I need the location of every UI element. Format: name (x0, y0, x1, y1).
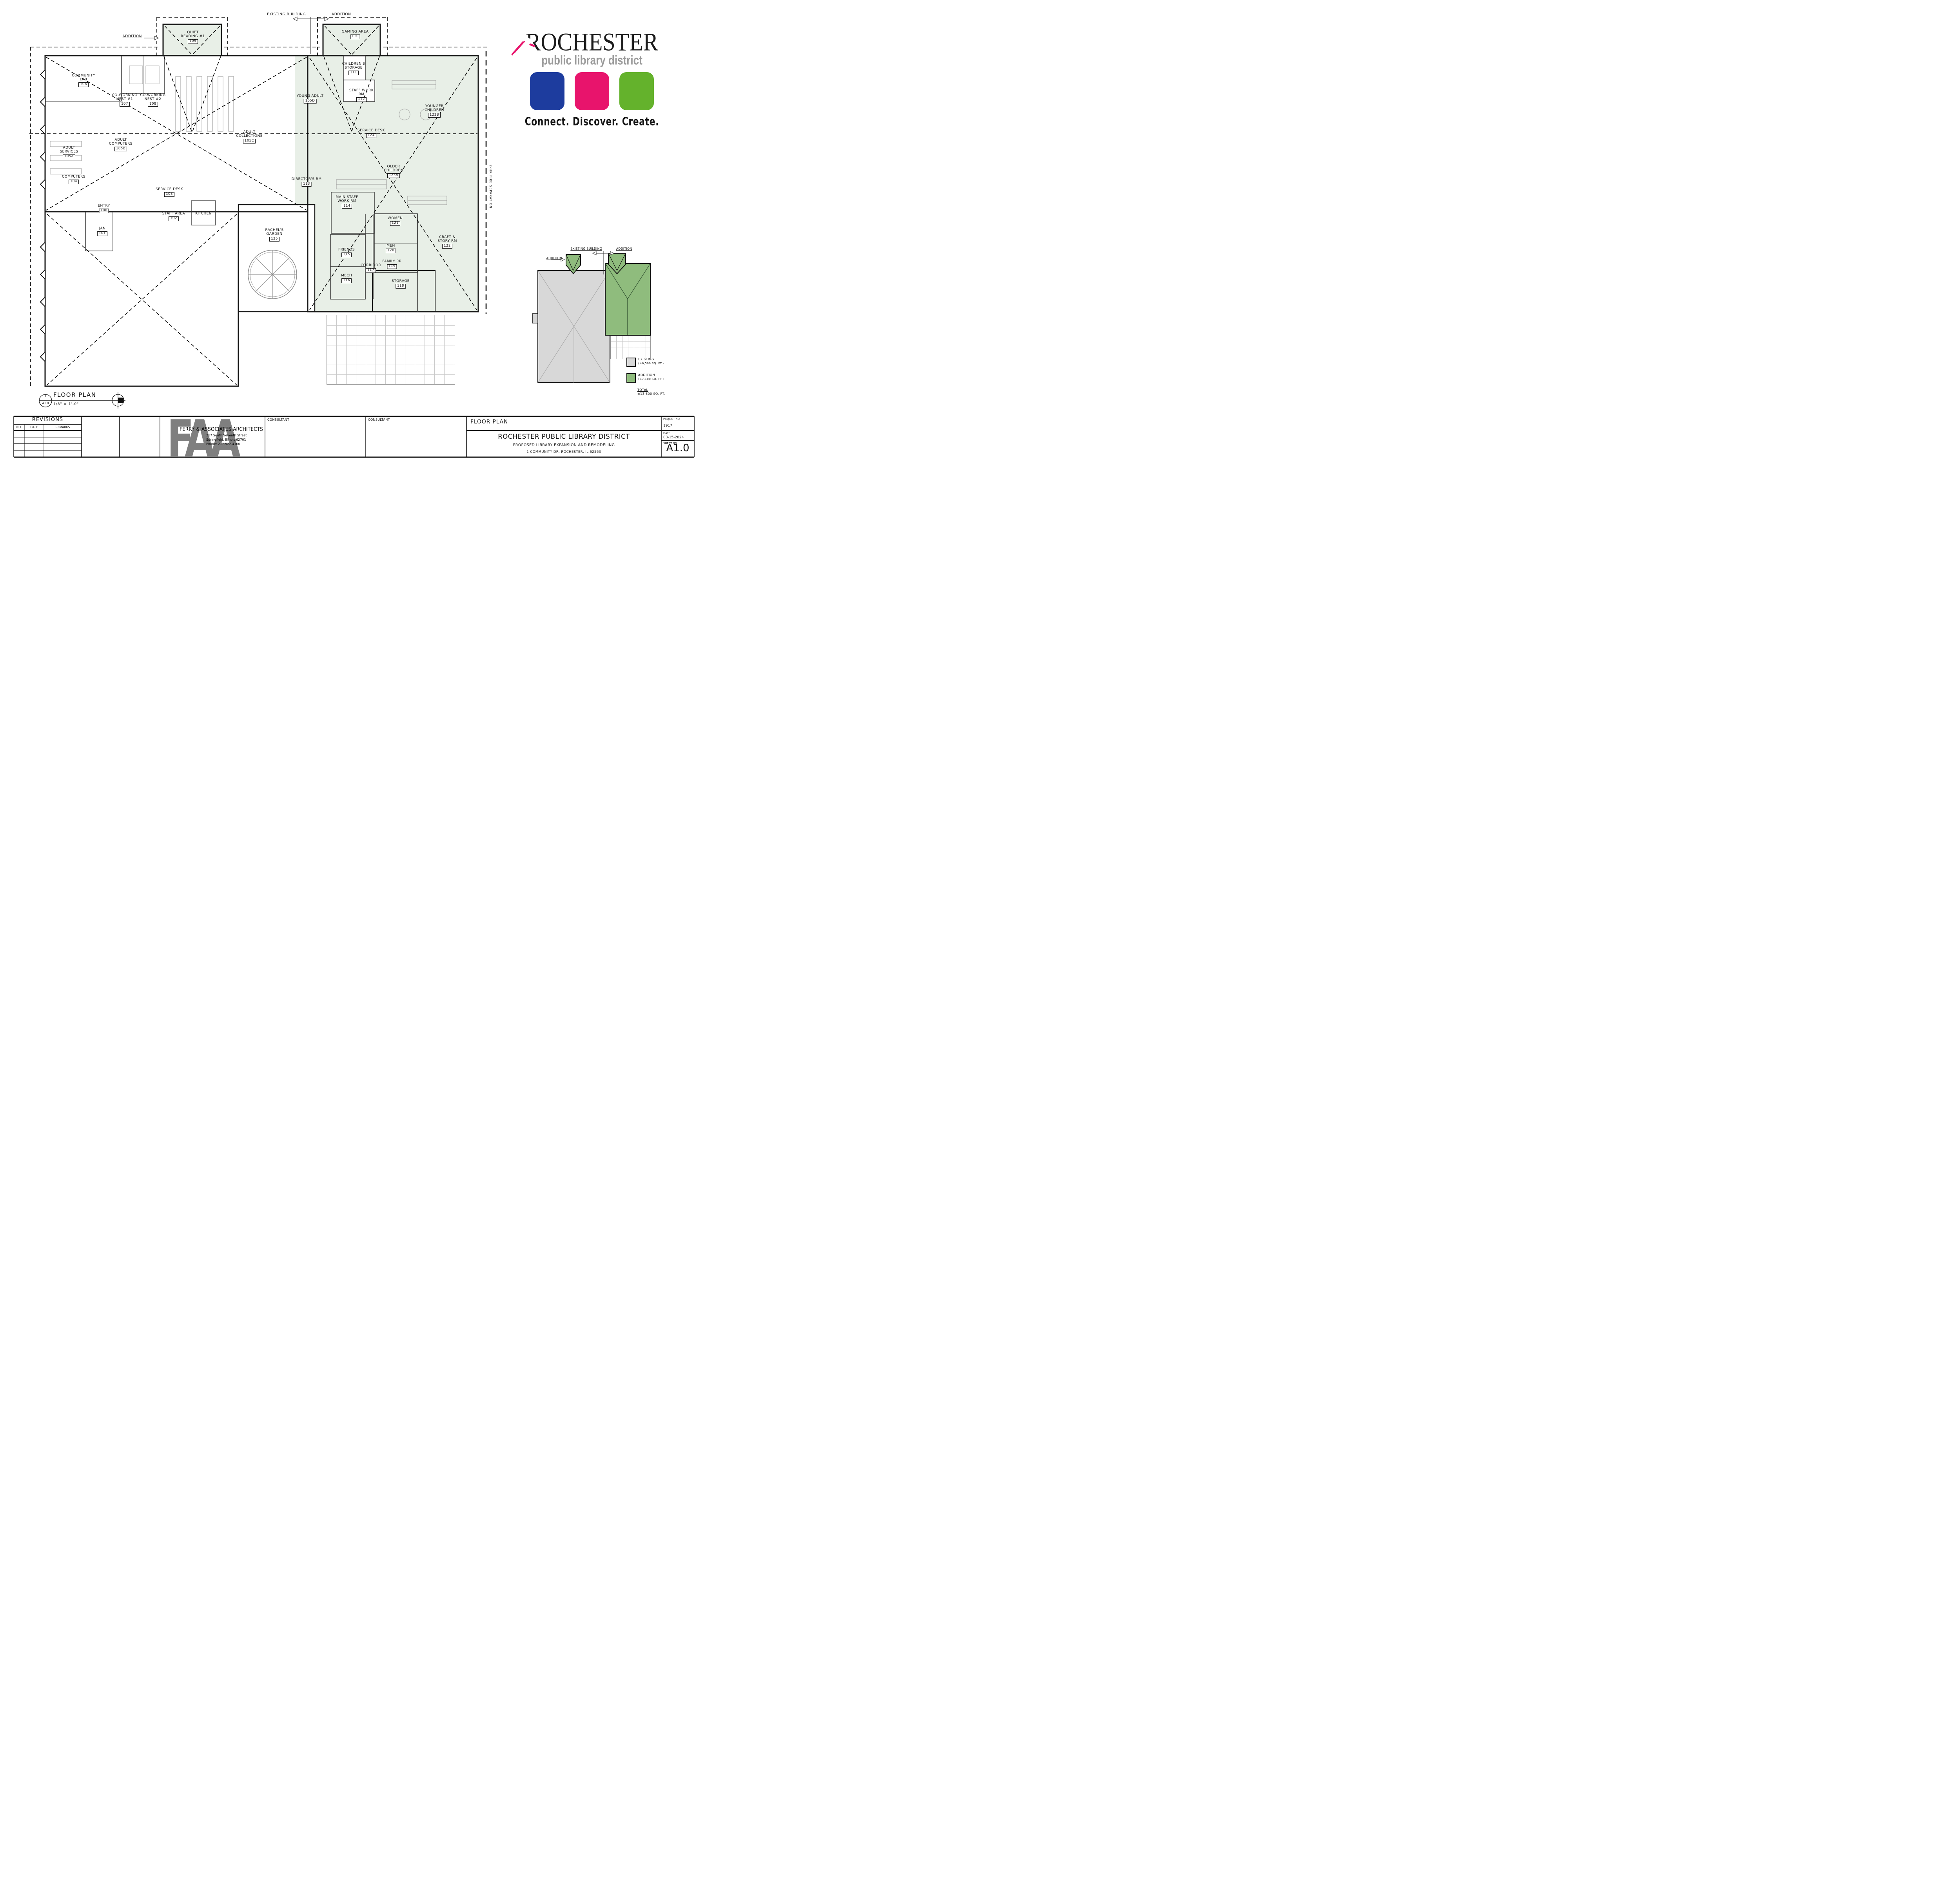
room-label-adult-collections: ADULT COLLECTIONS105C (235, 130, 263, 144)
consultant-2-label: CONSULTANT (368, 418, 390, 421)
revisions-col-no: NO. (14, 425, 24, 429)
room-label-men: MEN120 (386, 244, 396, 253)
revisions-title: REVISIONS (14, 417, 82, 423)
plant-hand-icon (619, 72, 654, 110)
room-number: 124 (366, 133, 376, 138)
architect-address: 217 South Seventh Street Springfield, Il… (206, 434, 247, 446)
revisions-col-remarks: REMARKS (44, 425, 82, 429)
detail-number: 1 (44, 394, 47, 398)
north-arrow-icon (112, 392, 124, 409)
room-number: 111 (348, 71, 359, 75)
room-number: 115 (341, 253, 352, 257)
consultant-1-label: CONSULTANT (267, 418, 289, 421)
room-number: 105B (114, 147, 127, 151)
revisions-col-date: DATE (24, 425, 44, 429)
project-description: PROPOSED LIBRARY EXPANSION AND REMODELIN… (466, 443, 661, 447)
legend-addition-row: ADDITION (±7,100 SQ. FT.) (626, 373, 664, 383)
addition-label: ADDITION (332, 13, 351, 16)
sheet-title: FLOOR PLAN (470, 419, 508, 425)
room-number: 120 (386, 249, 396, 253)
room-label-coworking-2: CO-WORKING NEST #2108 (139, 93, 167, 107)
room-label-friends: FRIENDS115 (338, 248, 355, 257)
legend-total-area: ±13,600 SQ. FT. (637, 392, 665, 396)
room-number: 113 (301, 182, 312, 187)
room-number: 123B (428, 113, 441, 118)
logo-tagline: Connect. Discover. Create. (523, 115, 661, 128)
date-label: DATE (663, 432, 670, 435)
bay-windows (40, 70, 45, 362)
room-label-older-children: OLDER CHILDREN123A (379, 165, 408, 178)
room-label-rachels-garden: RACHEL'S GARDEN125 (260, 228, 289, 242)
logo-subtitle: public library district (519, 53, 664, 68)
room-label-entry: ENTRY100 (98, 204, 110, 213)
garden-circle (248, 250, 297, 299)
room-label-storage: STORAGE118 (392, 279, 410, 289)
room-label-service-desk-103: SERVICE DESK103 (156, 187, 183, 197)
architectural-sheet: COMMUNITY LAB106 CO-WORKING NEST #1107 C… (0, 0, 706, 470)
room-label-adult-computers: ADULT COMPUTERS105B (107, 138, 135, 151)
key-plan-existing-label: EXISTING BUILDING (570, 247, 602, 251)
addition-arrow (144, 36, 158, 40)
project-no-label: PROJECT NO. (663, 418, 681, 421)
project-no-value: 1917 (663, 424, 672, 428)
sheet-no-value: A1.0 (661, 442, 694, 454)
room-number: 116 (341, 278, 352, 283)
room-label-childrens-storage: CHILDREN'S STORAGE111 (339, 62, 368, 75)
room-number: 118 (396, 284, 406, 289)
project-address: 1 COMMUNITY DR, ROCHESTER, IL 62563 (466, 450, 661, 454)
room-number: 108 (148, 102, 158, 107)
book-icon (575, 72, 609, 110)
logo-icons (506, 72, 678, 110)
room-number: 121 (390, 221, 400, 226)
room-number: 105D (304, 99, 317, 104)
room-label-staff-area: STAFF AREA102 (162, 212, 185, 221)
legend-existing-row: EXISTING (±6,500 SQ. FT.) (626, 358, 664, 367)
date-value: 03-15-2024 (663, 436, 684, 440)
legend-addition-area: (±7,100 SQ. FT.) (638, 377, 664, 381)
room-label-mech: MECH116 (341, 274, 352, 283)
client-name: ROCHESTER PUBLIC LIBRARY DISTRICT (466, 433, 661, 440)
room-label-staff-work-rm: STAFF WORK RM112 (347, 89, 376, 102)
addition-label-left: ADDITION (123, 35, 142, 38)
room-number: 101 (97, 231, 107, 236)
room-number: 103 (164, 192, 174, 197)
room-label-directors-rm: DIRECTOR'S RM113 (292, 177, 322, 187)
room-number: 125 (269, 237, 279, 242)
room-label-jan: JAN101 (97, 227, 107, 236)
drawing-scale: 1/8" = 1'-0" (53, 402, 79, 406)
room-number: 114 (342, 204, 352, 209)
room-label-kitchen: KITCHEN (195, 212, 212, 216)
room-number: 109 (188, 39, 198, 44)
room-label-community-lab: COMMUNITY LAB106 (69, 74, 98, 87)
library-logo: ROCHESTER public library district (506, 31, 678, 128)
room-number: 119 (387, 264, 397, 269)
room-number: 105A (63, 154, 75, 159)
existing-building-label: EXISTING BUILDING (267, 13, 306, 16)
room-number: 122 (442, 244, 452, 249)
room-number: 117 (366, 268, 376, 273)
room-label-family-rr: FAMILY RR119 (382, 260, 401, 269)
legend-existing-label: EXISTING (638, 358, 654, 361)
room-label-corridor: CORRIDOR117 (361, 263, 381, 273)
room-number: 123A (387, 173, 400, 178)
room-number: 107 (120, 102, 130, 107)
architect-block: FAA FERRY & ASSOCIATES ARCHITECTS 217 So… (160, 416, 265, 457)
key-plan-patio (610, 336, 651, 359)
key-plan-addition-left-label: ADDITION (546, 256, 562, 260)
room-number: 100 (99, 209, 109, 213)
drawing-title: FLOOR PLAN (53, 391, 96, 398)
room-label-adult-services: ADULT SERVICES105A (55, 146, 83, 159)
addition-fill (163, 24, 478, 312)
legend-total: TOTAL ±13,600 SQ. FT. (637, 388, 665, 396)
room-number: 104 (69, 180, 79, 184)
key-plan-addition-right-label: ADDITION (616, 247, 632, 251)
legend-existing-area: (±6,500 SQ. FT.) (638, 362, 664, 365)
legend-addition-swatch (626, 373, 636, 383)
room-label-women: WOMEN121 (388, 216, 403, 226)
detail-sheet-ref: A1.0 (42, 401, 49, 405)
room-number: 110 (350, 35, 360, 39)
room-label-computers: COMPUTERS104 (62, 175, 85, 184)
architect-name: FERRY & ASSOCIATES ARCHITECTS (180, 427, 263, 432)
legend-addition-label: ADDITION (638, 373, 655, 377)
room-label-young-adult: YOUNG ADULT105D (297, 94, 324, 104)
patio-paving (327, 315, 455, 385)
room-label-quiet-reading: QUIET READING #1109 (179, 31, 207, 44)
room-label-coworking-1: CO-WORKING NEST #1107 (111, 93, 139, 107)
room-number: 105C (243, 139, 256, 144)
globe-icon (530, 72, 564, 110)
room-label-service-desk-124: SERVICE DESK124 (358, 129, 385, 138)
legend-total-label: TOTAL (637, 388, 648, 392)
room-label-craft-story-rm: CRAFT & STORY RM122 (433, 235, 461, 249)
room-number: 102 (169, 216, 179, 221)
legend-existing-swatch (626, 358, 636, 367)
room-number: 106 (78, 82, 89, 87)
room-label-younger-children: YOUNGER CHILDREN123B (420, 104, 448, 118)
room-number: 112 (356, 97, 367, 102)
room-label-main-staff-work-rm: MAIN STAFF WORK RM114 (333, 195, 361, 209)
fire-separation-label: 2-HR FIRE SEPARATION (489, 165, 492, 209)
room-label-gaming-area: GAMING AREA110 (342, 30, 369, 39)
